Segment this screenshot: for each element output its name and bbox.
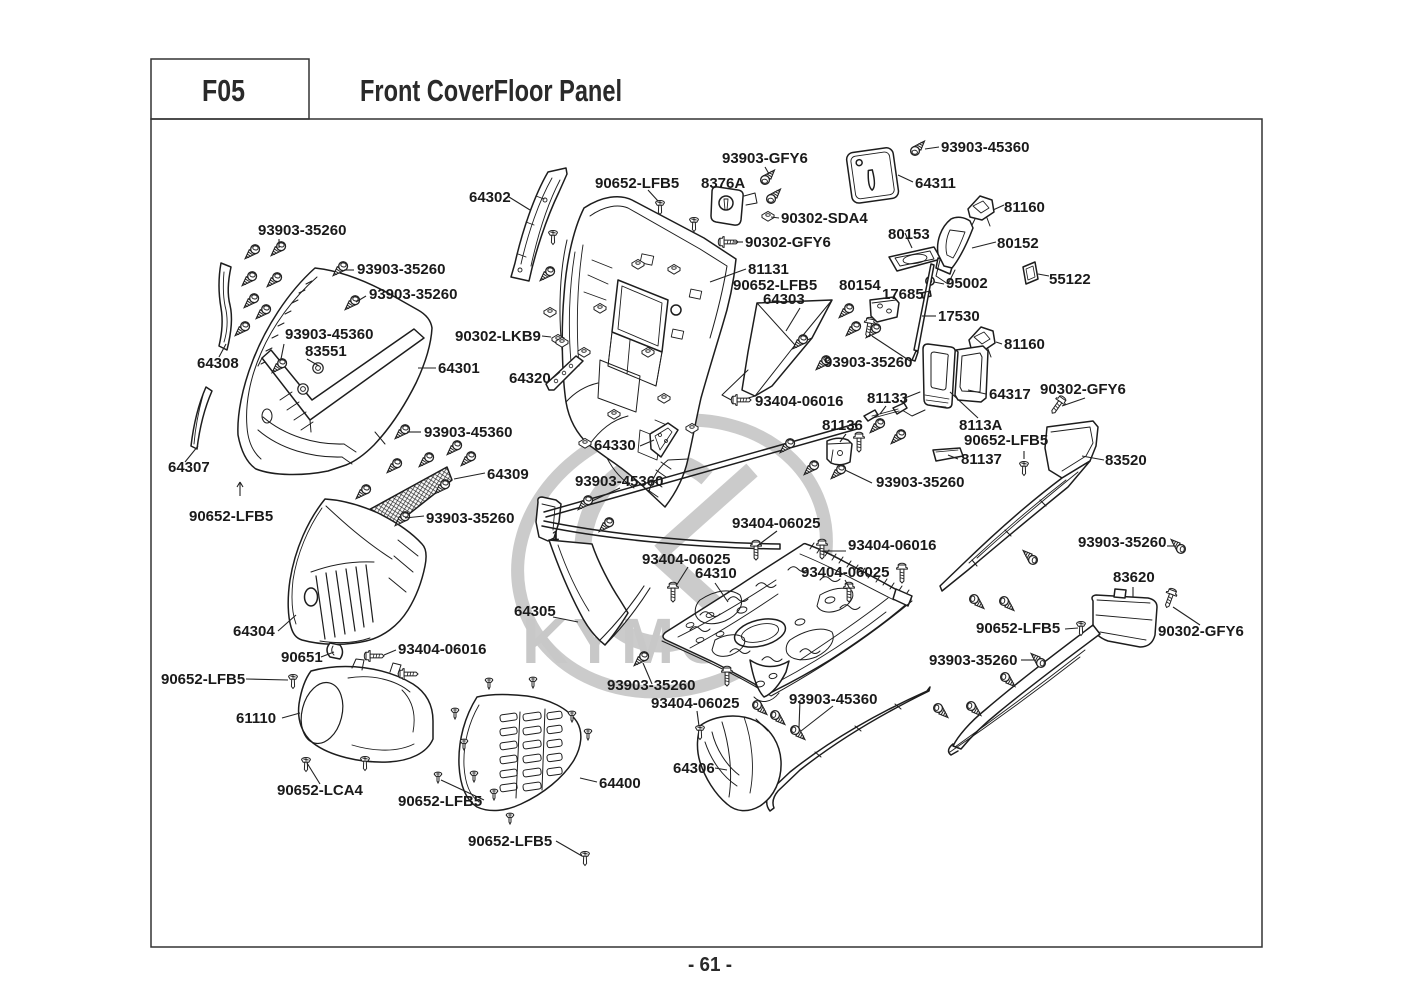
- svg-text:90652-LFB5: 90652-LFB5: [161, 671, 245, 688]
- svg-text:64309: 64309: [487, 466, 529, 483]
- svg-text:64307: 64307: [168, 459, 210, 476]
- svg-text:64317: 64317: [989, 386, 1031, 403]
- svg-text:55122: 55122: [1049, 271, 1091, 288]
- svg-text:90652-LFB5: 90652-LFB5: [976, 620, 1060, 637]
- svg-text:Front CoverFloor Panel: Front CoverFloor Panel: [360, 73, 622, 108]
- svg-text:93903-35260: 93903-35260: [426, 510, 514, 527]
- svg-text:8376A: 8376A: [701, 175, 745, 192]
- svg-text:90302-GFY6: 90302-GFY6: [745, 234, 831, 251]
- svg-text:64302: 64302: [469, 189, 511, 206]
- svg-text:17685: 17685: [882, 286, 924, 303]
- svg-text:90302-SDA4: 90302-SDA4: [781, 210, 868, 227]
- svg-text:90652-LFB5: 90652-LFB5: [964, 432, 1048, 449]
- svg-text:61110: 61110: [236, 710, 276, 727]
- svg-text:81131: 81131: [748, 261, 789, 278]
- svg-text:93903-45360: 93903-45360: [424, 424, 512, 441]
- svg-text:64304: 64304: [233, 623, 275, 640]
- svg-text:93404-06016: 93404-06016: [755, 393, 843, 410]
- svg-text:90652-LFB5: 90652-LFB5: [189, 508, 273, 525]
- svg-text:95002: 95002: [946, 275, 988, 292]
- svg-text:90302-GFY6: 90302-GFY6: [1040, 381, 1126, 398]
- svg-text:81160: 81160: [1004, 336, 1045, 353]
- svg-text:93903-35260: 93903-35260: [929, 652, 1017, 669]
- svg-text:81133: 81133: [867, 390, 908, 407]
- svg-text:64305: 64305: [514, 603, 556, 620]
- svg-text:64306: 64306: [673, 760, 715, 777]
- svg-text:93903-35260: 93903-35260: [876, 474, 964, 491]
- svg-text:64301: 64301: [438, 360, 480, 377]
- svg-text:F05: F05: [202, 73, 245, 108]
- svg-text:17530: 17530: [938, 308, 980, 325]
- svg-text:93404-06016: 93404-06016: [848, 537, 936, 554]
- svg-text:64311: 64311: [915, 175, 956, 192]
- svg-text:93903-35260: 93903-35260: [258, 222, 346, 239]
- svg-text:- 61 -: - 61 -: [688, 954, 732, 976]
- svg-text:93404-06025: 93404-06025: [732, 515, 820, 532]
- svg-text:90302-LKB9: 90302-LKB9: [455, 328, 541, 345]
- svg-text:93903-35260: 93903-35260: [824, 354, 912, 371]
- svg-text:90651: 90651: [281, 649, 323, 666]
- svg-text:93404-06025: 93404-06025: [651, 695, 739, 712]
- svg-text:90652-LCA4: 90652-LCA4: [277, 782, 364, 799]
- svg-text:93903-45360: 93903-45360: [941, 139, 1029, 156]
- svg-text:93903-45360: 93903-45360: [789, 691, 877, 708]
- svg-text:83620: 83620: [1113, 569, 1155, 586]
- svg-text:93903-35260: 93903-35260: [1078, 534, 1166, 551]
- svg-text:80154: 80154: [839, 277, 881, 294]
- svg-text:1: 1: [552, 528, 559, 543]
- svg-text:64320: 64320: [509, 370, 551, 387]
- svg-text:90652-LFB5: 90652-LFB5: [595, 175, 679, 192]
- svg-text:64310: 64310: [695, 565, 737, 582]
- svg-text:93404-06025: 93404-06025: [801, 564, 889, 581]
- svg-text:80152: 80152: [997, 235, 1039, 252]
- svg-text:93903-35260: 93903-35260: [607, 677, 695, 694]
- svg-text:64303: 64303: [763, 291, 805, 308]
- svg-text:93903-45360: 93903-45360: [285, 326, 373, 343]
- svg-text:90302-GFY6: 90302-GFY6: [1158, 623, 1244, 640]
- svg-text:83520: 83520: [1105, 452, 1147, 469]
- svg-text:81136: 81136: [822, 417, 863, 434]
- svg-text:93903-35260: 93903-35260: [357, 261, 445, 278]
- svg-text:83551: 83551: [305, 343, 347, 360]
- svg-text:93903-35260: 93903-35260: [369, 286, 457, 303]
- svg-text:90652-LFB5: 90652-LFB5: [468, 833, 552, 850]
- svg-text:93404-06016: 93404-06016: [398, 641, 486, 658]
- svg-text:93903-GFY6: 93903-GFY6: [722, 150, 808, 167]
- svg-text:81160: 81160: [1004, 199, 1045, 216]
- svg-text:90652-LFB5: 90652-LFB5: [398, 793, 482, 810]
- svg-text:93903-45360: 93903-45360: [575, 473, 663, 490]
- svg-text:80153: 80153: [888, 226, 930, 243]
- svg-text:64308: 64308: [197, 355, 239, 372]
- svg-text:64400: 64400: [599, 775, 641, 792]
- svg-text:81137: 81137: [961, 451, 1002, 468]
- svg-text:64330: 64330: [594, 437, 636, 454]
